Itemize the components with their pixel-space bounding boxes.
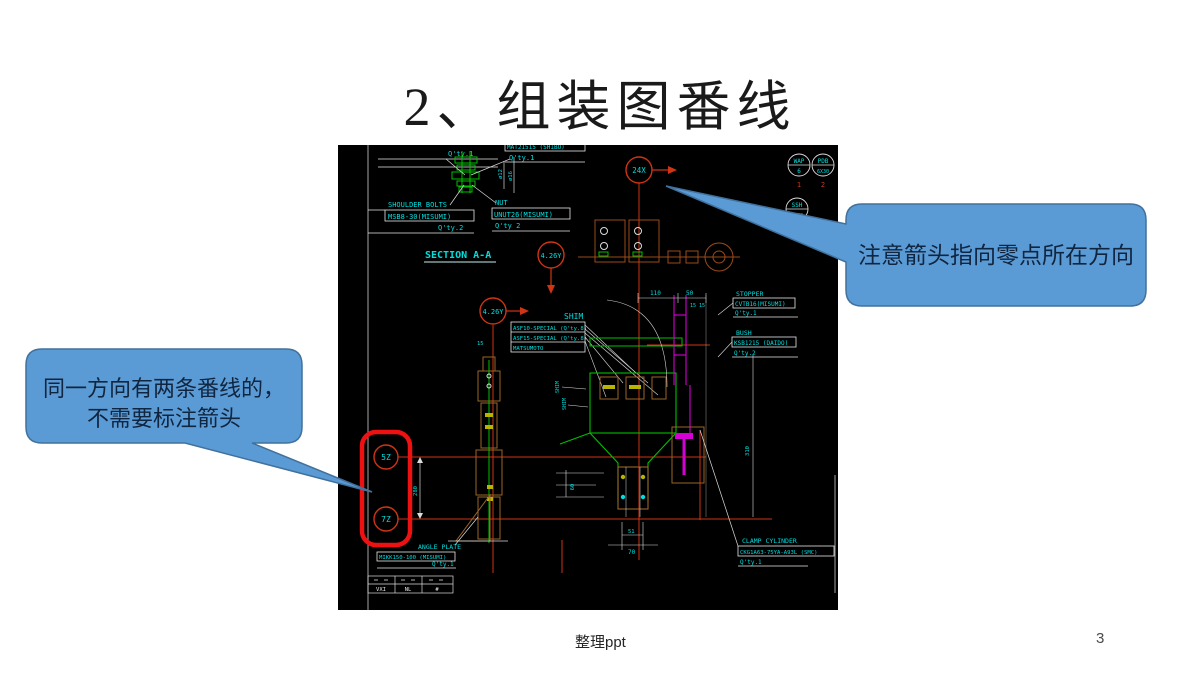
angle-plate-qty: Q'ty.1 [432, 561, 454, 568]
dim-280: 280 [413, 486, 419, 496]
label-nut: NUT UNUT26(MISUMI) Q'ty 2 [492, 199, 570, 231]
bolt-assembly-detail [452, 151, 479, 193]
clamp-name: CLAMP CYLINDER [742, 537, 797, 545]
shoulder-bolts-qty: Q'ty.2 [438, 224, 463, 232]
bush-part: KSB1215 (DAIDO) [734, 340, 788, 347]
balloon-426y-top-text: 4.26Y [540, 252, 562, 260]
shim-vertical-labels: SHIM SHIM [555, 381, 588, 410]
top-right-name: MAT21515 (SHIBO) [507, 145, 565, 151]
dim-70: 70 [628, 549, 636, 556]
balloon-426y-mid: 4.26Y [480, 298, 529, 324]
titleblock-cell-2: NL [405, 587, 412, 593]
title-block-table: VXI NL # [368, 576, 453, 593]
shim-title: SHIM [564, 312, 583, 321]
balloon-5z-text: 5Z [381, 453, 391, 462]
balloon-426y-top: 4.26Y [538, 242, 564, 294]
nut-qty: Q'ty 2 [495, 222, 520, 230]
top-part-labels: Q'ty.1 MAT21515 (SHIBO) Q'ty.1 [378, 145, 585, 167]
shim-v2: SHIM [562, 398, 568, 410]
dim-d15: 15 [477, 341, 484, 347]
page-title: 2、组装图番线 [0, 62, 1200, 141]
dim-d16: ø16 [508, 171, 514, 181]
top-right-qty: Q'ty.1 [509, 154, 534, 162]
balloon-24x-text: 24X [632, 166, 646, 175]
callout-left-line1: 同一方向有两条番线的， [43, 376, 285, 401]
fastener-wap-size: 6 [797, 168, 801, 175]
dim-310: 310 [745, 446, 751, 456]
fastener-pdb: PDB [818, 158, 829, 165]
magenta-cylinder [672, 295, 704, 483]
angle-plate-name: ANGLE PLATE [418, 543, 461, 551]
clamp-qty: Q'ty.1 [740, 559, 762, 566]
center-assembly [560, 300, 682, 517]
label-shim: SHIM ASF10-SPECIAL (Q'ty.8) ASF15-SPECIA… [511, 312, 658, 397]
left-column-part [448, 357, 508, 543]
fastener-pdb-size: 6X30 [817, 169, 829, 175]
label-angle-plate: ANGLE PLATE MIKK150-100 (MISUMI) Q'ty.1 [377, 517, 478, 568]
label-clamp-cylinder: CLAMP CYLINDER CKG1A63-75YA-A93L (SMC) Q… [700, 430, 834, 566]
balloon-426y-mid-text: 4.26Y [482, 308, 504, 316]
dim-51: 51 [628, 529, 635, 535]
shim-row-2: ASF15-SPECIAL (Q'ty.8) [513, 336, 587, 342]
balloon-7z-text: 7Z [381, 515, 391, 524]
shim-row-1: ASF10-SPECIAL (Q'ty.8) [513, 326, 587, 332]
bush-name: BUSH [736, 329, 752, 337]
label-bush: BUSH KSB1215 (DAIDO) Q'ty.2 [718, 329, 798, 357]
shim-row-3: MATSUMOTO [513, 346, 544, 352]
page-number: 3 [1096, 630, 1104, 647]
callout-left-line2: 不需要标注箭头 [87, 406, 241, 431]
clamp-part: CKG1A63-75YA-A93L (SMC) [740, 550, 817, 556]
section-text: SECTION A-A [425, 250, 491, 261]
titleblock-cell-3: # [435, 587, 439, 593]
callout-right: 注意箭头指向零点所在方向 [660, 178, 1164, 312]
shoulder-bolts-name: SHOULDER BOLTS [388, 201, 447, 209]
callout-right-text: 注意箭头指向零点所在方向 [858, 243, 1134, 268]
bolt-leader-lines [446, 157, 514, 205]
titleblock-cell-1: VXI [376, 587, 386, 593]
dim-d12: ø12 [498, 169, 504, 179]
dim-60: 60 [570, 484, 576, 491]
nut-part: UNUT26(MISUMI) [494, 211, 553, 219]
fastener-wap: WAP [794, 158, 805, 165]
section-label: SECTION A-A [424, 250, 496, 262]
callout-left: 同一方向有两条番线的， 不需要标注箭头 [24, 346, 376, 496]
footer-text: 整理ppt [575, 631, 626, 652]
shoulder-bolts-part: MSB8-30(MISUMI) [388, 213, 451, 221]
shim-v1: SHIM [555, 381, 561, 393]
label-shoulder-bolts: SHOULDER BOLTS MSB8-30(MISUMI) Q'ty.2 [368, 201, 474, 233]
nut-name: NUT [495, 199, 508, 207]
